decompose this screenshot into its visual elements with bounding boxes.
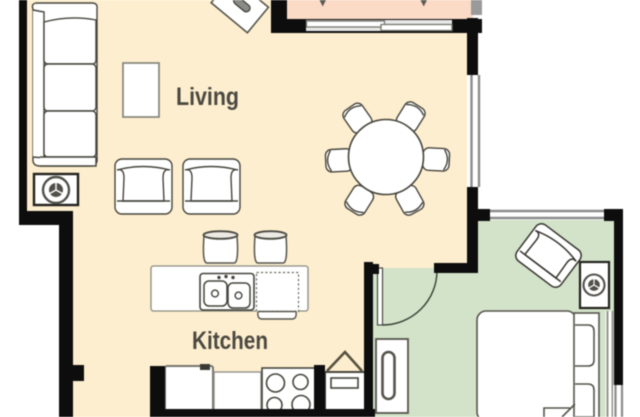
svg-text:Living: Living: [176, 83, 239, 111]
svg-text:Kitchen: Kitchen: [192, 327, 268, 355]
